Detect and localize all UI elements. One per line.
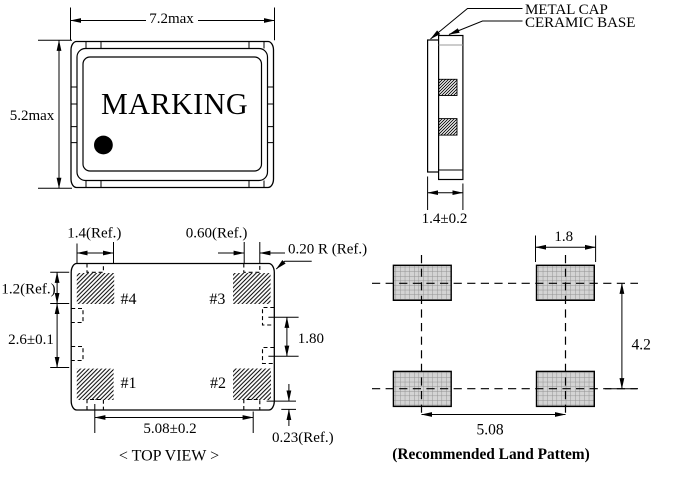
svg-text:MARKING: MARKING bbox=[101, 87, 248, 121]
svg-text:CERAMIC BASE: CERAMIC BASE bbox=[525, 15, 635, 31]
svg-text:0.23(Ref.): 0.23(Ref.) bbox=[272, 430, 334, 446]
svg-text:4.2: 4.2 bbox=[632, 337, 651, 354]
svg-text:#4: #4 bbox=[121, 291, 137, 308]
svg-text:0.20 R (Ref.): 0.20 R (Ref.) bbox=[288, 242, 367, 258]
svg-text:1.8: 1.8 bbox=[554, 229, 573, 245]
svg-text:2.6±0.1: 2.6±0.1 bbox=[8, 332, 54, 348]
svg-text:0.60(Ref.): 0.60(Ref.) bbox=[186, 226, 248, 242]
svg-text:#1: #1 bbox=[121, 375, 137, 392]
svg-text:5.08: 5.08 bbox=[476, 422, 503, 439]
svg-text:#2: #2 bbox=[210, 375, 226, 392]
svg-text:#3: #3 bbox=[209, 291, 225, 308]
svg-text:7.2max: 7.2max bbox=[149, 11, 194, 27]
svg-text:1.80: 1.80 bbox=[298, 331, 324, 347]
svg-text:< TOP VIEW >: < TOP VIEW > bbox=[119, 448, 219, 465]
svg-text:5.08±0.2: 5.08±0.2 bbox=[143, 421, 196, 437]
svg-text:(Recommended Land Pattem): (Recommended Land Pattem) bbox=[392, 446, 589, 463]
svg-text:1.4±0.2: 1.4±0.2 bbox=[422, 211, 468, 227]
svg-text:5.2max: 5.2max bbox=[10, 108, 55, 124]
svg-text:1.2(Ref.): 1.2(Ref.) bbox=[1, 282, 55, 298]
svg-text:1.4(Ref.): 1.4(Ref.) bbox=[67, 226, 121, 242]
